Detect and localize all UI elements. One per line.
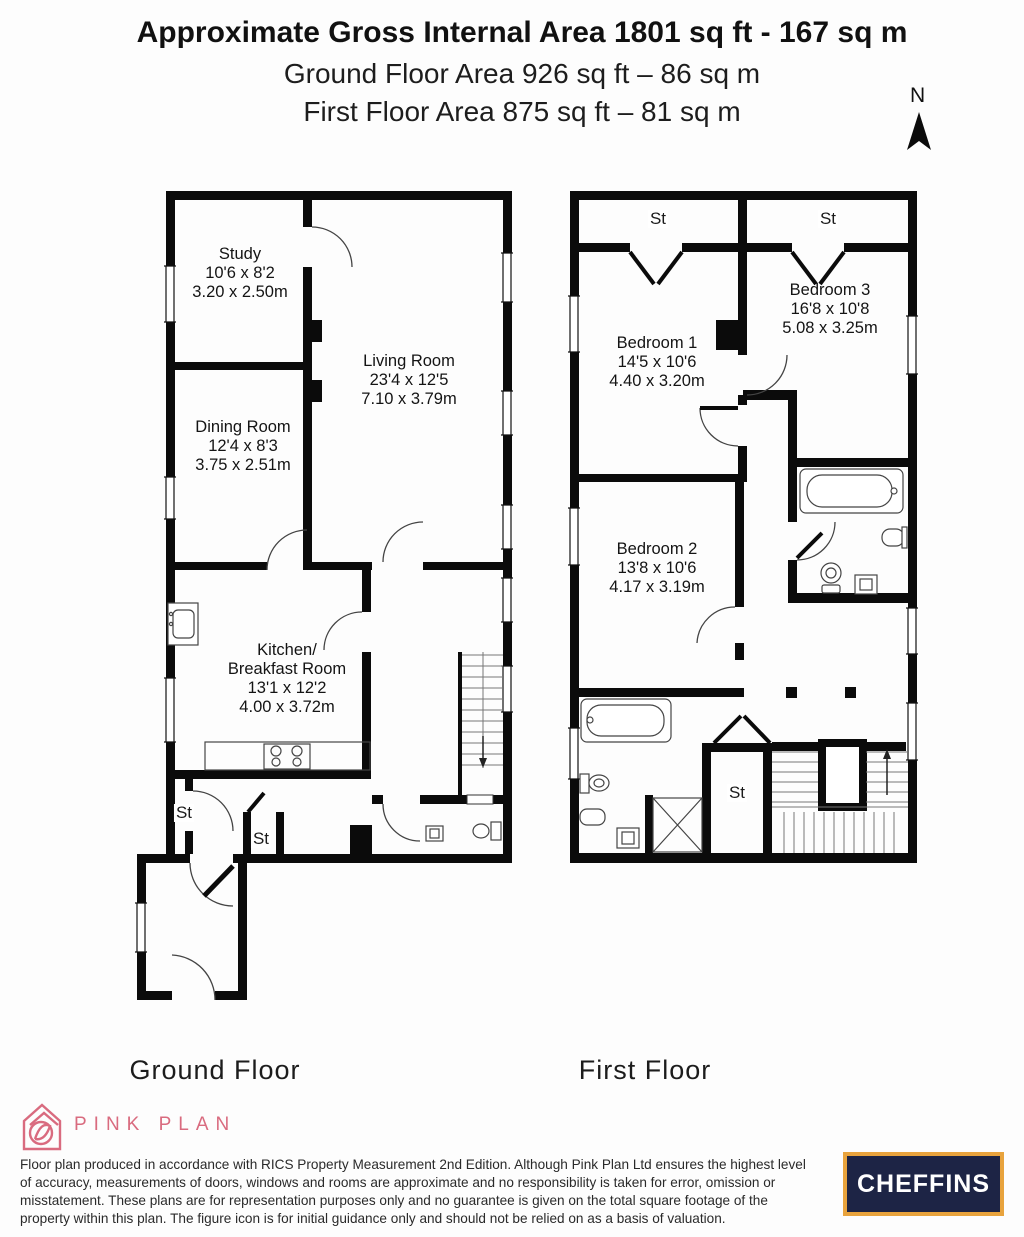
- page-title: Approximate Gross Internal Area 1801 sq …: [20, 16, 1024, 50]
- ground-wc-toilet-icon: [473, 822, 501, 840]
- bathroom2-shower-icon: [653, 798, 702, 852]
- room-name: Bedroom 3: [782, 281, 877, 300]
- floorplan-drawing: [0, 0, 1024, 1237]
- bathroom1-basin-icon: [882, 527, 907, 548]
- kitchen-sink-icon: [168, 603, 198, 645]
- floorplan-page: Approximate Gross Internal Area 1801 sq …: [0, 0, 1024, 1237]
- storage-label: St: [818, 210, 838, 228]
- first-floor-caption: First Floor: [579, 1055, 712, 1086]
- room-dims-imperial: 16'8 x 10'8: [782, 300, 877, 319]
- room-dims-imperial: 23'4 x 12'5: [361, 371, 456, 390]
- room-name: Dining Room: [195, 418, 290, 437]
- room-label-bedroom2: Bedroom 2 13'8 x 10'6 4.17 x 3.19m: [609, 540, 704, 597]
- room-label-bedroom3: Bedroom 3 16'8 x 10'8 5.08 x 3.25m: [782, 281, 877, 338]
- room-name: Bedroom 2: [609, 540, 704, 559]
- room-name: Kitchen/: [228, 641, 346, 660]
- room-dims-imperial: 10'6 x 8'2: [192, 264, 287, 283]
- storage-label: St: [727, 784, 747, 802]
- bathroom2-bidet-icon: [580, 809, 605, 825]
- room-dims-metric: 4.40 x 3.20m: [609, 372, 704, 391]
- room-dims-metric: 3.75 x 2.51m: [195, 456, 290, 475]
- room-dims-metric: 3.20 x 2.50m: [192, 283, 287, 302]
- room-label-bedroom1: Bedroom 1 14'5 x 10'6 4.40 x 3.20m: [609, 334, 704, 391]
- first-floor-area-line: First Floor Area 875 sq ft – 81 sq m: [20, 96, 1024, 128]
- room-name: Bedroom 1: [609, 334, 704, 353]
- room-label-dining-room: Dining Room 12'4 x 8'3 3.75 x 2.51m: [195, 418, 290, 475]
- cheffins-logo: CHEFFINS: [843, 1152, 1004, 1216]
- ground-floor-area-line: Ground Floor Area 926 sq ft – 86 sq m: [20, 58, 1024, 90]
- compass-north-label: N: [910, 84, 925, 108]
- ground-floor-plan: [135, 191, 513, 1000]
- room-label-kitchen: Kitchen/ Breakfast Room 13'1 x 12'2 4.00…: [228, 641, 346, 717]
- kitchen-hob-icon: [205, 742, 370, 770]
- bathroom1-bath-icon: [800, 469, 903, 513]
- ground-floor-door-arcs: [172, 227, 423, 1000]
- storage-label: St: [648, 210, 668, 228]
- room-dims-metric: 5.08 x 3.25m: [782, 319, 877, 338]
- storage-label: St: [174, 804, 194, 822]
- room-name: Breakfast Room: [228, 660, 346, 679]
- bathroom1-toilet-icon: [821, 563, 841, 593]
- room-dims-imperial: 12'4 x 8'3: [195, 437, 290, 456]
- room-dims-metric: 7.10 x 3.79m: [361, 390, 456, 409]
- bathroom2-toilet-icon: [580, 774, 609, 793]
- room-label-study: Study 10'6 x 8'2 3.20 x 2.50m: [192, 245, 287, 302]
- disclaimer-text: Floor plan produced in accordance with R…: [20, 1156, 820, 1228]
- bathroom2-bath-icon: [581, 699, 671, 742]
- room-name: Living Room: [361, 352, 456, 371]
- storage-label: St: [251, 830, 271, 848]
- bathroom1-sink-icon: [855, 575, 877, 594]
- pink-plan-wordmark: PINK PLAN: [74, 1114, 236, 1136]
- room-dims-imperial: 13'8 x 10'6: [609, 559, 704, 578]
- bathroom2-sink-icon: [617, 828, 639, 848]
- ground-floor-caption: Ground Floor: [129, 1055, 300, 1086]
- room-dims-metric: 4.17 x 3.19m: [609, 578, 704, 597]
- ground-wc-sink-icon: [426, 826, 443, 841]
- room-dims-metric: 4.00 x 3.72m: [228, 698, 346, 717]
- stairwell-void: [826, 747, 859, 803]
- room-name: Study: [192, 245, 287, 264]
- ground-floor-stairs: [462, 652, 503, 804]
- room-dims-imperial: 14'5 x 10'6: [609, 353, 704, 372]
- pink-plan-house-icon: [16, 1099, 68, 1155]
- room-label-living-room: Living Room 23'4 x 12'5 7.10 x 3.79m: [361, 352, 456, 409]
- room-dims-imperial: 13'1 x 12'2: [228, 679, 346, 698]
